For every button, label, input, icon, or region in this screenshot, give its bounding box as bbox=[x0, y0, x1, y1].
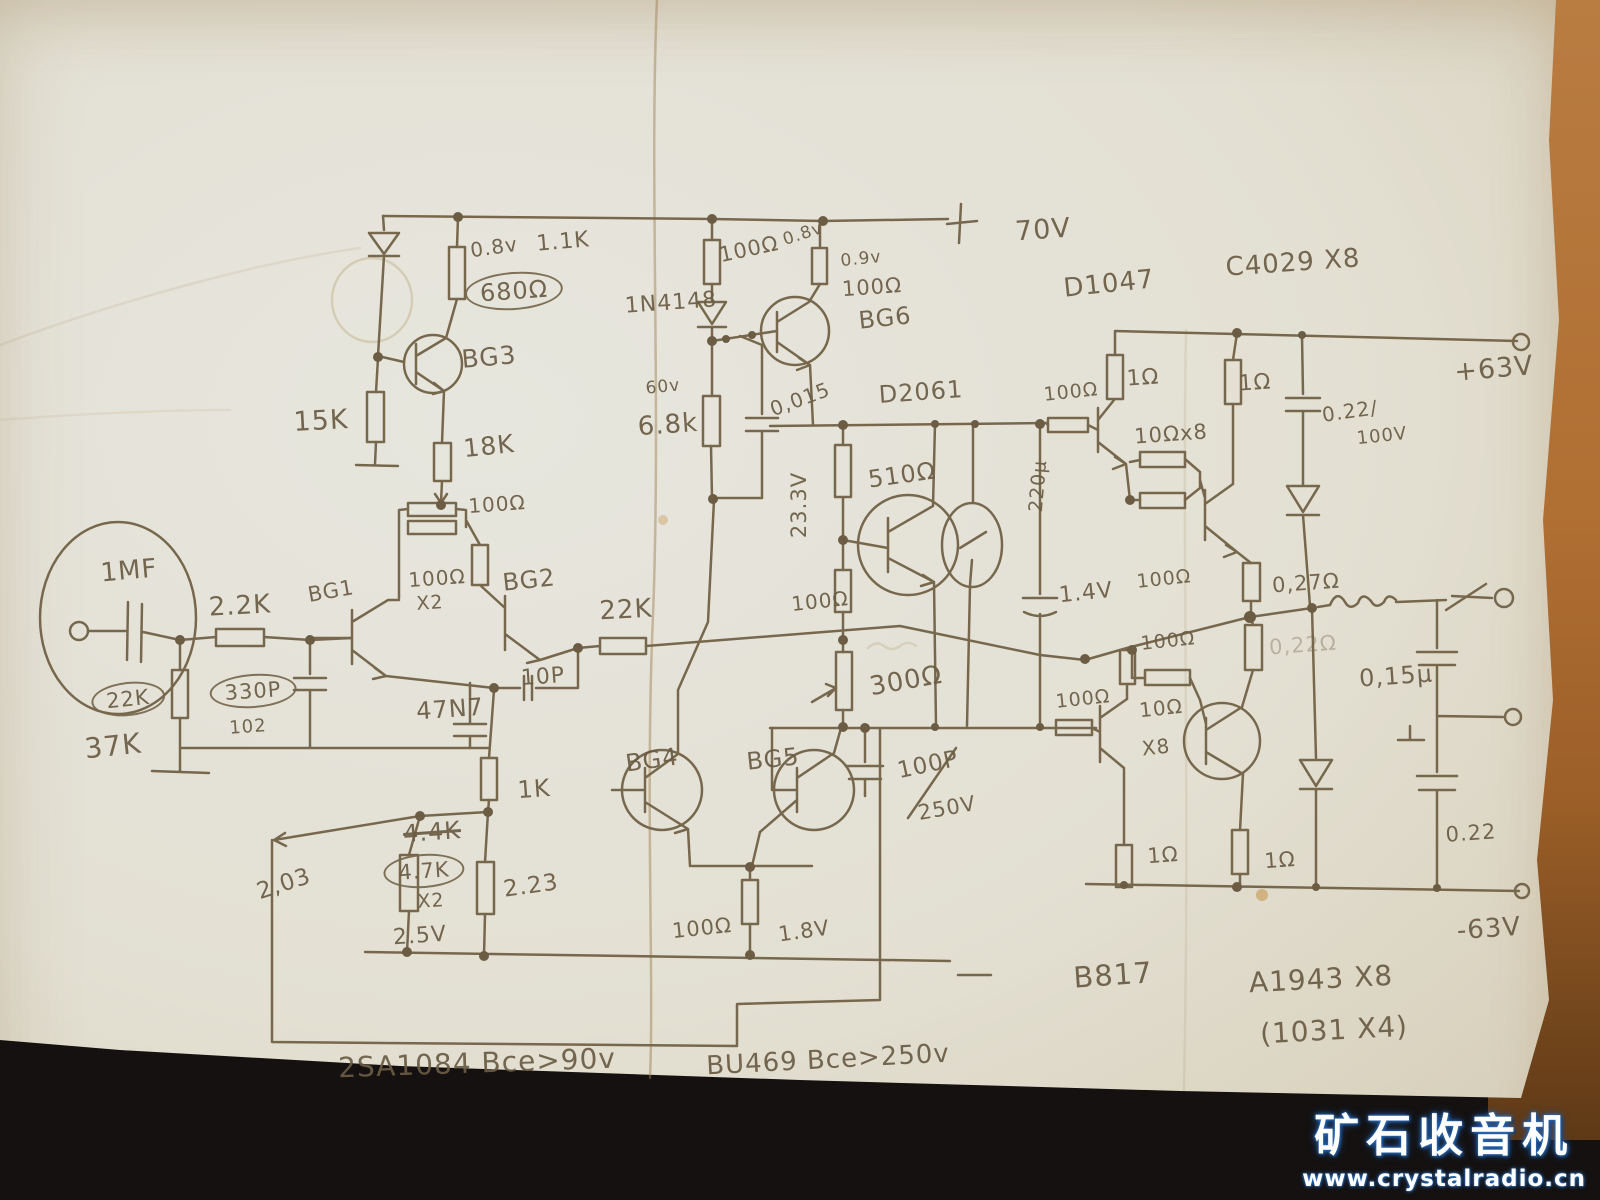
schematic-label: 0.8v bbox=[780, 218, 825, 250]
schematic-label: 1Ω bbox=[1238, 369, 1272, 396]
schematic-label: B817 bbox=[1072, 955, 1153, 994]
schematic-label: 37K bbox=[83, 727, 143, 766]
schematic-label: 1.4V bbox=[1058, 578, 1114, 609]
schematic-label: BG2 bbox=[501, 563, 557, 596]
schematic-label: BG3 bbox=[460, 340, 517, 374]
schematic-label: +63V bbox=[1453, 350, 1535, 388]
schematic-label: 0.9v bbox=[840, 247, 883, 271]
schematic-label: 102 bbox=[229, 715, 268, 739]
schematic-label: BU469 Bce>250v bbox=[706, 1039, 951, 1082]
schematic-label: 10Ω bbox=[1138, 694, 1184, 722]
schematic-label: 100Ω bbox=[407, 564, 466, 592]
schematic-label: -63V bbox=[1456, 912, 1522, 946]
schematic-label: X8 bbox=[1141, 734, 1172, 761]
schematic-label: 0.22/ bbox=[1320, 395, 1379, 427]
schematic-label: 23.3V bbox=[787, 472, 811, 538]
schematic-label: 100Ω bbox=[1055, 685, 1112, 713]
schematic-label: X2 bbox=[416, 591, 445, 615]
schematic-label: 0.22 bbox=[1445, 819, 1497, 846]
schematic-label: 2SA1084 Bce>90v bbox=[338, 1042, 617, 1085]
schematic-label: 1.1K bbox=[535, 227, 590, 257]
photo-of-hand-drawn-amplifier-schematic: 0.8v1.1K680ΩBG315K18K1N4148100Ω0.8v0.9v1… bbox=[0, 0, 1600, 1200]
schematic-label: 100Ω bbox=[1136, 565, 1193, 593]
schematic-label: BG1 bbox=[306, 575, 356, 607]
schematic-label: 1MF bbox=[99, 554, 158, 589]
schematic-label: 60v bbox=[645, 375, 682, 399]
schematic-label: 250V bbox=[916, 791, 978, 825]
schematic-label: A1943 X8 bbox=[1248, 959, 1394, 1000]
schematic-label: 100Ω bbox=[467, 490, 526, 518]
schematic-label: 22K bbox=[90, 678, 167, 719]
schematic-label: 100Ω bbox=[671, 913, 733, 943]
schematic-label: 510Ω bbox=[866, 456, 937, 493]
schematic-label: 2.2K bbox=[208, 589, 272, 622]
schematic-label: 300Ω bbox=[867, 660, 945, 702]
schematic-label: 0,27Ω bbox=[1271, 569, 1340, 598]
schematic-label: 100Ω bbox=[717, 231, 781, 267]
schematic-label: 2.23 bbox=[502, 869, 560, 902]
schematic-label: D2061 bbox=[878, 375, 964, 409]
schematic-label: 100Ω bbox=[841, 273, 903, 301]
schematic-label: 15K bbox=[293, 404, 350, 438]
schematic-label: 100Ω bbox=[1043, 378, 1100, 406]
schematic-label: 1Ω bbox=[1263, 847, 1296, 873]
schematic-labels: 0.8v1.1K680ΩBG315K18K1N4148100Ω0.8v0.9v1… bbox=[0, 0, 1600, 1200]
schematic-label: 2.5V bbox=[392, 922, 448, 951]
watermark-site-url: www.crystalradio.cn bbox=[1302, 1166, 1586, 1192]
watermark: 矿石收音机 www.crystalradio.cn bbox=[1302, 1099, 1586, 1192]
schematic-label: 4.7K bbox=[382, 851, 465, 891]
schematic-label: 4.4K bbox=[402, 816, 462, 848]
schematic-label: 1Ω bbox=[1146, 842, 1179, 868]
watermark-site-name: 矿石收音机 bbox=[1302, 1099, 1586, 1164]
schematic-label: 680Ω bbox=[464, 269, 565, 314]
schematic-label: 22K bbox=[599, 594, 654, 627]
schematic-label: 100Ω bbox=[1140, 627, 1197, 655]
schematic-label: 0,015 bbox=[767, 377, 834, 421]
schematic-label: BG5 bbox=[745, 742, 801, 775]
schematic-label: 1.8V bbox=[777, 916, 832, 947]
schematic-label: 220µ bbox=[1025, 459, 1051, 513]
schematic-label: 100V bbox=[1356, 423, 1409, 449]
schematic-label: (1031 X4) bbox=[1259, 1010, 1409, 1051]
schematic-label: 10Ωx8 bbox=[1133, 419, 1208, 448]
schematic-label: 18K bbox=[462, 429, 516, 463]
schematic-label: 100P bbox=[895, 746, 961, 784]
schematic-label: 6.8k bbox=[637, 408, 699, 442]
schematic-label: 0.8v bbox=[469, 232, 520, 262]
schematic-label: 0,15µ bbox=[1358, 659, 1433, 692]
schematic-label: 100Ω bbox=[790, 586, 850, 616]
schematic-label: 330P bbox=[209, 671, 298, 711]
schematic-label: 1K bbox=[517, 774, 552, 804]
schematic-label: 70V bbox=[1014, 213, 1072, 248]
schematic-label: 1Ω bbox=[1126, 364, 1160, 391]
schematic-label: D1047 bbox=[1062, 264, 1156, 303]
schematic-label: BG4 bbox=[624, 742, 680, 777]
schematic-label: BG6 bbox=[857, 301, 913, 334]
schematic-label: 1N4148 bbox=[624, 287, 718, 318]
schematic-label: 0,22Ω bbox=[1268, 631, 1337, 660]
schematic-label: C4029 X8 bbox=[1225, 243, 1362, 282]
schematic-label: 2,03 bbox=[254, 863, 315, 905]
schematic-label: X2 bbox=[417, 889, 446, 913]
schematic-label: 47N7 bbox=[415, 693, 485, 726]
schematic-label: 10P bbox=[520, 663, 566, 691]
